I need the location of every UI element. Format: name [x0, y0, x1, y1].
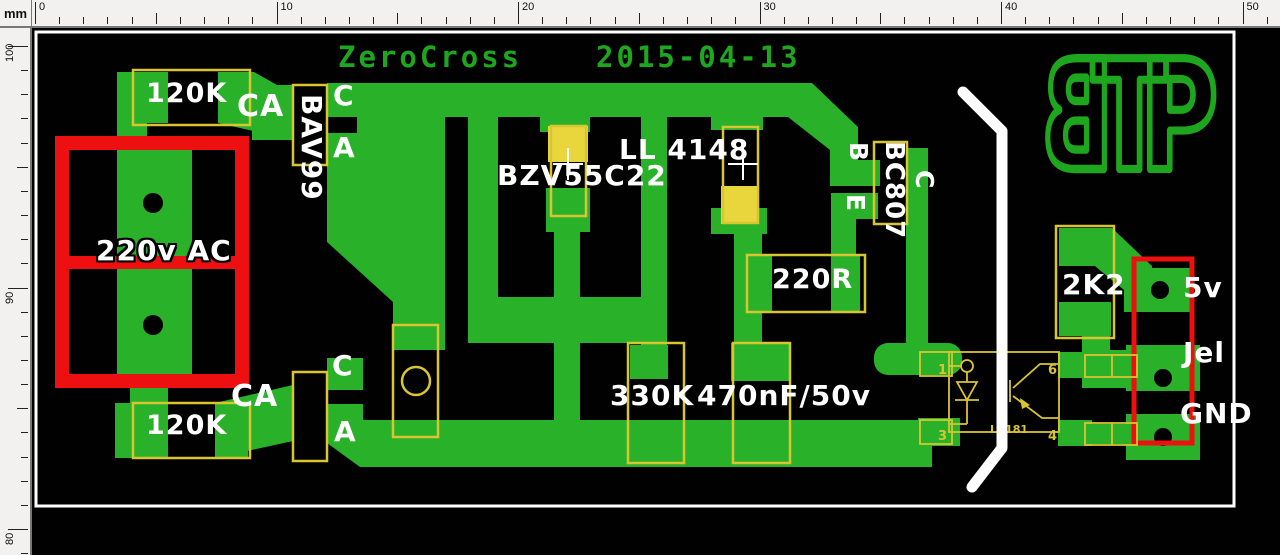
logo-letter-p: P	[1140, 28, 1218, 205]
ruler-unit-corner: mm	[0, 0, 32, 28]
ruler-tick	[132, 17, 133, 24]
ruler-label: 80	[4, 533, 16, 545]
ruler-tick	[639, 13, 640, 24]
ruler-label: 50	[1247, 1, 1259, 13]
ruler-tick	[21, 360, 28, 361]
ruler-tick	[8, 529, 28, 530]
project-title: ZeroCross	[338, 43, 522, 72]
ruler-tick	[1098, 17, 1099, 24]
ruler-tick	[1218, 17, 1219, 24]
ruler-label: 30	[764, 1, 776, 13]
ruler-tick	[1243, 2, 1244, 24]
logo-btp: B T P	[1041, 28, 1218, 206]
ruler-tick	[663, 17, 664, 24]
ruler-tick	[977, 17, 978, 24]
ruler-tick	[349, 17, 350, 24]
ruler-tick	[1001, 2, 1002, 24]
ruler-tick	[904, 17, 905, 24]
ruler-tick	[21, 481, 28, 482]
ruler-tick	[252, 17, 253, 24]
pcb-artwork[interactable]: 1 3 6 4 LP181 B T P	[32, 28, 1280, 555]
ruler-tick	[760, 2, 761, 24]
opto-pin-number: 3	[938, 429, 947, 444]
ruler-tick	[1146, 17, 1147, 24]
ac-connector-divider	[57, 256, 247, 269]
ruler-tick	[107, 17, 108, 24]
horizontal-ruler[interactable]: 01020304050	[32, 0, 1280, 28]
ruler-tick	[228, 17, 229, 24]
ruler-unit-label: mm	[4, 6, 27, 21]
opto-ref-label: LP181	[990, 423, 1028, 436]
ruler-tick	[21, 191, 28, 192]
ruler-tick	[21, 70, 28, 71]
ruler-tick	[204, 17, 205, 24]
ruler-tick	[21, 312, 28, 313]
ruler-label: 20	[522, 1, 534, 13]
pcb-cad-window: mm 01020304050 1009080	[0, 0, 1280, 555]
ruler-tick	[1122, 13, 1123, 24]
opto-pin-number: 6	[1048, 363, 1057, 378]
ruler-tick	[21, 239, 28, 240]
ruler-tick	[17, 408, 28, 409]
ruler-tick	[566, 17, 567, 24]
ruler-tick	[59, 17, 60, 24]
ruler-tick	[953, 17, 954, 24]
ruler-tick	[470, 17, 471, 24]
ruler-tick	[373, 17, 374, 24]
ruler-tick	[832, 17, 833, 24]
ruler-tick	[156, 13, 157, 24]
ruler-tick	[17, 167, 28, 168]
ruler-tick	[35, 2, 36, 24]
ruler-tick	[808, 17, 809, 24]
ruler-tick	[518, 2, 519, 24]
ruler-tick	[301, 17, 302, 24]
ruler-tick	[21, 384, 28, 385]
ruler-tick	[397, 13, 398, 24]
ruler-tick	[21, 263, 28, 264]
opto-pin-number: 1	[938, 363, 947, 378]
ruler-tick	[21, 432, 28, 433]
ruler-tick	[687, 17, 688, 24]
ruler-label: 100	[4, 44, 16, 62]
ruler-tick	[83, 17, 84, 24]
ruler-tick	[880, 13, 881, 24]
ruler-tick	[1025, 17, 1026, 24]
ruler-tick	[856, 17, 857, 24]
ruler-tick	[1267, 17, 1268, 24]
ruler-label: 10	[281, 1, 293, 13]
ruler-tick	[21, 336, 28, 337]
ruler-tick	[1170, 17, 1171, 24]
opto-pin-number: 4	[1048, 429, 1057, 444]
ruler-tick	[277, 2, 278, 24]
ruler-tick	[929, 17, 930, 24]
ruler-tick	[21, 553, 28, 554]
ruler-tick	[21, 143, 28, 144]
ruler-tick	[542, 17, 543, 24]
ruler-tick	[615, 17, 616, 24]
project-date: 2015-04-13	[596, 43, 801, 72]
ruler-tick	[1073, 17, 1074, 24]
ruler-tick	[421, 17, 422, 24]
ruler-tick	[325, 17, 326, 24]
ruler-tick	[21, 118, 28, 119]
ruler-tick	[735, 17, 736, 24]
ruler-tick	[446, 17, 447, 24]
ruler-label: 90	[4, 291, 16, 303]
ruler-tick	[180, 17, 181, 24]
pcb-canvas[interactable]: 1 3 6 4 LP181 B T P Zero	[32, 28, 1280, 555]
ruler-tick	[1049, 17, 1050, 24]
ruler-tick	[21, 505, 28, 506]
ruler-tick	[21, 457, 28, 458]
ruler-tick	[494, 17, 495, 24]
ruler-tick	[8, 288, 28, 289]
ruler-tick	[21, 215, 28, 216]
ruler-tick	[711, 17, 712, 24]
ruler-label: 40	[1005, 1, 1017, 13]
ruler-tick	[1194, 17, 1195, 24]
vertical-ruler[interactable]: 1009080	[0, 28, 32, 555]
ruler-tick	[784, 17, 785, 24]
ruler-label: 0	[39, 1, 45, 13]
ruler-tick	[21, 94, 28, 95]
ruler-tick	[590, 17, 591, 24]
